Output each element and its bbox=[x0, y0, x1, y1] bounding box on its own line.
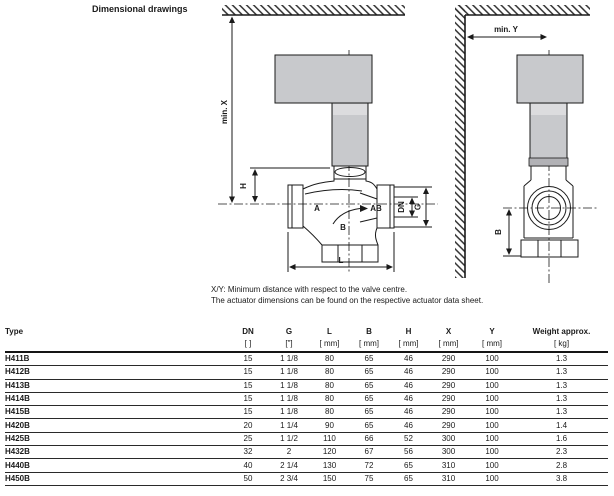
dimension-dn-g: DN G bbox=[394, 187, 432, 227]
value-cell: 65 bbox=[349, 392, 389, 405]
value-cell: 1.4 bbox=[515, 419, 608, 432]
value-cell: 65 bbox=[349, 352, 389, 366]
value-cell: 2.3 bbox=[515, 446, 608, 459]
value-cell: 65 bbox=[349, 366, 389, 379]
value-cell: 67 bbox=[349, 446, 389, 459]
table-row: H425B251 1/211066523001001.6 bbox=[5, 432, 608, 445]
value-cell: 290 bbox=[428, 352, 469, 366]
wall-hatch bbox=[455, 5, 590, 278]
dimension-min-y: min. Y bbox=[467, 25, 547, 40]
value-cell: 15 bbox=[228, 406, 268, 419]
value-cell: 110 bbox=[310, 432, 349, 445]
value-cell: 310 bbox=[428, 472, 469, 485]
value-cell: 3.8 bbox=[515, 472, 608, 485]
value-cell: 46 bbox=[389, 352, 428, 366]
dimension-min-x: min. X bbox=[220, 17, 235, 204]
valve-coupling bbox=[334, 166, 366, 179]
value-cell: 1.3 bbox=[515, 379, 608, 392]
value-cell: 1 1/8 bbox=[268, 379, 310, 392]
value-cell: 100 bbox=[469, 352, 515, 366]
table-row: H415B151 1/88065462901001.3 bbox=[5, 406, 608, 419]
value-cell: 40 bbox=[228, 459, 268, 472]
table-head-row: TypeDN[ ]G["]L[ mm]B[ mm]H[ mm]X[ mm]Y[ … bbox=[5, 326, 608, 352]
table-row: H420B201 1/49065462901001.4 bbox=[5, 419, 608, 432]
l-label: L bbox=[339, 256, 344, 265]
value-cell: 290 bbox=[428, 392, 469, 405]
value-cell: 100 bbox=[469, 379, 515, 392]
table-row: H413B151 1/88065462901001.3 bbox=[5, 379, 608, 392]
value-cell: 300 bbox=[428, 432, 469, 445]
dn-label: DN bbox=[397, 201, 406, 213]
type-cell: H450B bbox=[5, 472, 228, 485]
type-cell: H415B bbox=[5, 406, 228, 419]
table-row: H432B32212067563001002.3 bbox=[5, 446, 608, 459]
dimension-h: H bbox=[239, 168, 330, 203]
min-x-label: min. X bbox=[220, 99, 229, 124]
value-cell: 2 bbox=[268, 446, 310, 459]
side-view-drawing: min. Y bbox=[455, 5, 597, 283]
value-cell: 1 1/8 bbox=[268, 392, 310, 405]
value-cell: 100 bbox=[469, 432, 515, 445]
valve-body-front bbox=[288, 179, 394, 262]
value-cell: 46 bbox=[389, 379, 428, 392]
footnotes: X/Y: Minimum distance with respect to th… bbox=[211, 284, 483, 306]
actuator-side bbox=[517, 55, 583, 166]
value-cell: 100 bbox=[469, 446, 515, 459]
value-cell: 80 bbox=[310, 406, 349, 419]
column-header: L[ mm] bbox=[310, 326, 349, 352]
column-header: H[ mm] bbox=[389, 326, 428, 352]
value-cell: 65 bbox=[349, 406, 389, 419]
value-cell: 65 bbox=[349, 419, 389, 432]
dimensions-table: TypeDN[ ]G["]L[ mm]B[ mm]H[ mm]X[ mm]Y[ … bbox=[5, 326, 608, 486]
value-cell: 52 bbox=[389, 432, 428, 445]
table-body: H411B151 1/88065462901001.3H412B151 1/88… bbox=[5, 352, 608, 485]
type-cell: H440B bbox=[5, 459, 228, 472]
value-cell: 56 bbox=[389, 446, 428, 459]
value-cell: 1.3 bbox=[515, 352, 608, 366]
value-cell: 46 bbox=[389, 406, 428, 419]
ceiling-hatch bbox=[222, 5, 405, 15]
value-cell: 290 bbox=[428, 419, 469, 432]
value-cell: 290 bbox=[428, 379, 469, 392]
value-cell: 80 bbox=[310, 352, 349, 366]
value-cell: 15 bbox=[228, 366, 268, 379]
value-cell: 65 bbox=[389, 459, 428, 472]
value-cell: 46 bbox=[389, 392, 428, 405]
value-cell: 120 bbox=[310, 446, 349, 459]
value-cell: 20 bbox=[228, 419, 268, 432]
b-side-label: B bbox=[494, 229, 503, 235]
value-cell: 80 bbox=[310, 379, 349, 392]
type-cell: H412B bbox=[5, 366, 228, 379]
column-header: X[ mm] bbox=[428, 326, 469, 352]
value-cell: 15 bbox=[228, 352, 268, 366]
value-cell: 1 1/8 bbox=[268, 366, 310, 379]
value-cell: 65 bbox=[389, 472, 428, 485]
front-view-drawing: min. X bbox=[218, 5, 438, 274]
value-cell: 32 bbox=[228, 446, 268, 459]
column-header: G["] bbox=[268, 326, 310, 352]
port-a-label: A bbox=[314, 204, 320, 213]
value-cell: 2 1/4 bbox=[268, 459, 310, 472]
note-xy: X/Y: Minimum distance with respect to th… bbox=[211, 284, 483, 295]
dimensional-drawings: min. X bbox=[0, 0, 614, 320]
type-cell: H432B bbox=[5, 446, 228, 459]
value-cell: 2.8 bbox=[515, 459, 608, 472]
value-cell: 290 bbox=[428, 366, 469, 379]
value-cell: 25 bbox=[228, 432, 268, 445]
table-row: H414B151 1/88065462901001.3 bbox=[5, 392, 608, 405]
table-row: H450B502 3/415075653101003.8 bbox=[5, 472, 608, 485]
port-ab-label: AB bbox=[370, 204, 382, 213]
actuator-front bbox=[275, 55, 372, 166]
dimension-b-side: B bbox=[494, 209, 521, 256]
value-cell: 310 bbox=[428, 459, 469, 472]
type-cell: H420B bbox=[5, 419, 228, 432]
datasheet-page: Dimensional drawings min. X bbox=[0, 0, 614, 496]
value-cell: 72 bbox=[349, 459, 389, 472]
value-cell: 1 1/4 bbox=[268, 419, 310, 432]
value-cell: 15 bbox=[228, 379, 268, 392]
column-header: Type bbox=[5, 326, 228, 352]
value-cell: 46 bbox=[389, 419, 428, 432]
value-cell: 100 bbox=[469, 406, 515, 419]
table-row: H411B151 1/88065462901001.3 bbox=[5, 352, 608, 366]
value-cell: 1.3 bbox=[515, 406, 608, 419]
h-label: H bbox=[239, 183, 248, 189]
value-cell: 290 bbox=[428, 406, 469, 419]
value-cell: 46 bbox=[389, 366, 428, 379]
port-b-label: B bbox=[340, 223, 346, 232]
note-actuator: The actuator dimensions can be found on … bbox=[211, 295, 483, 306]
value-cell: 2 3/4 bbox=[268, 472, 310, 485]
table-row: H412B151 1/88065462901001.3 bbox=[5, 366, 608, 379]
value-cell: 100 bbox=[469, 419, 515, 432]
value-cell: 150 bbox=[310, 472, 349, 485]
value-cell: 1 1/8 bbox=[268, 352, 310, 366]
value-cell: 100 bbox=[469, 472, 515, 485]
value-cell: 1.3 bbox=[515, 366, 608, 379]
value-cell: 66 bbox=[349, 432, 389, 445]
value-cell: 80 bbox=[310, 392, 349, 405]
value-cell: 1 1/2 bbox=[268, 432, 310, 445]
value-cell: 300 bbox=[428, 446, 469, 459]
column-header: DN[ ] bbox=[228, 326, 268, 352]
type-cell: H411B bbox=[5, 352, 228, 366]
value-cell: 65 bbox=[349, 379, 389, 392]
table-row: H440B402 1/413072653101002.8 bbox=[5, 459, 608, 472]
valve-body-side bbox=[521, 166, 578, 257]
value-cell: 1 1/8 bbox=[268, 406, 310, 419]
value-cell: 1.3 bbox=[515, 392, 608, 405]
value-cell: 80 bbox=[310, 366, 349, 379]
column-header: B[ mm] bbox=[349, 326, 389, 352]
column-header: Y[ mm] bbox=[469, 326, 515, 352]
value-cell: 15 bbox=[228, 392, 268, 405]
value-cell: 100 bbox=[469, 459, 515, 472]
value-cell: 75 bbox=[349, 472, 389, 485]
column-header: Weight approx.[ kg] bbox=[515, 326, 608, 352]
value-cell: 100 bbox=[469, 392, 515, 405]
value-cell: 90 bbox=[310, 419, 349, 432]
type-cell: H425B bbox=[5, 432, 228, 445]
type-cell: H413B bbox=[5, 379, 228, 392]
value-cell: 50 bbox=[228, 472, 268, 485]
g-label: G bbox=[414, 204, 423, 210]
value-cell: 1.6 bbox=[515, 432, 608, 445]
value-cell: 130 bbox=[310, 459, 349, 472]
value-cell: 100 bbox=[469, 366, 515, 379]
type-cell: H414B bbox=[5, 392, 228, 405]
min-y-label: min. Y bbox=[494, 25, 519, 34]
